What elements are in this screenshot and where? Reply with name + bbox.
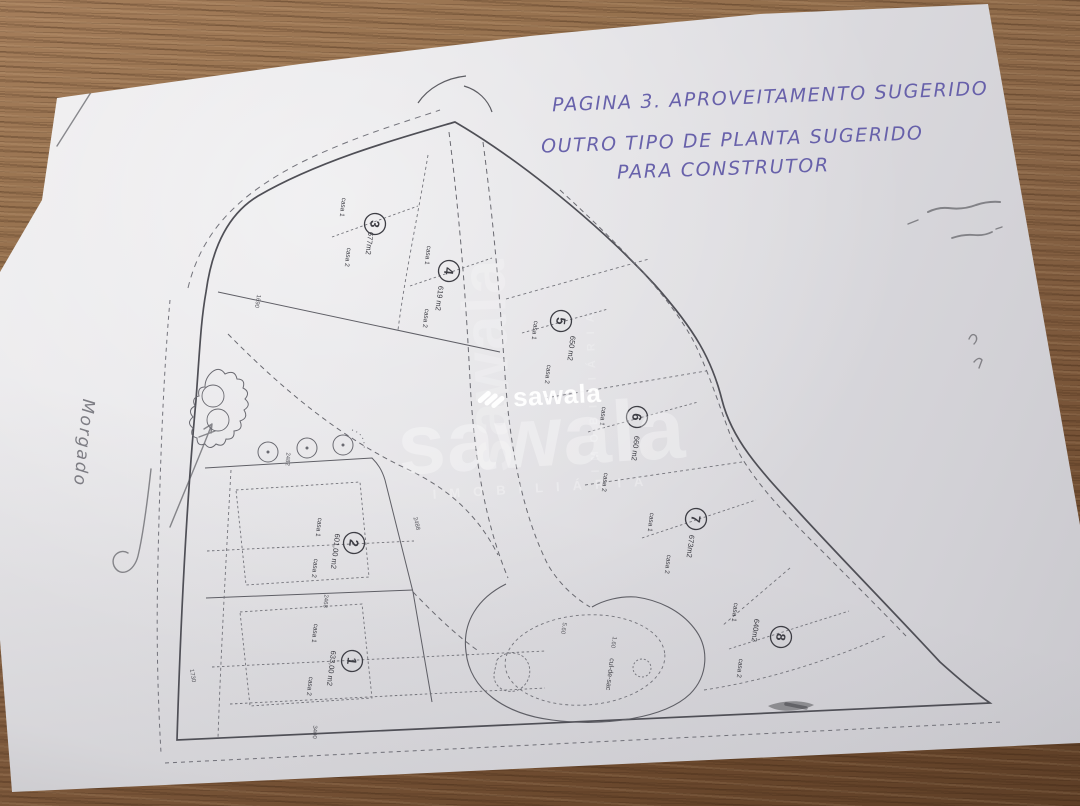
lot-1-number: 1 xyxy=(344,656,360,665)
dimension-labels: 1690 2482 2488 2468 3400 1730 5.60 1.60 … xyxy=(188,294,617,739)
lot-4-labels: 4 casa 1 619 m2 casa 2 xyxy=(421,245,461,328)
lot-5-labels: 5 casa 1 650 m2 casa 2 xyxy=(530,309,578,384)
road-right-frontage xyxy=(560,190,906,636)
dim-160: 1.60 xyxy=(609,636,617,649)
road-edge-east xyxy=(483,142,590,607)
road-curve-west-branch xyxy=(228,334,498,555)
ink-smudge xyxy=(768,701,814,710)
lot-8-number: 8 xyxy=(773,632,789,641)
garden-trees xyxy=(190,369,365,462)
dim-3400: 3400 xyxy=(311,725,317,739)
dim-2488: 2488 xyxy=(411,517,420,532)
lot8-south-dashed xyxy=(704,636,885,690)
cul-de-sac-outline xyxy=(465,584,704,722)
lot-5-area: 650 m2 xyxy=(565,335,577,361)
shrub-circle-2 xyxy=(207,409,229,431)
lot-8-house2: casa 2 xyxy=(735,658,744,678)
lot3-lot4-divider xyxy=(398,155,428,330)
lot-8-house1: casa 1 xyxy=(730,602,739,622)
house-divider-lines xyxy=(207,206,849,667)
entrance-arcs xyxy=(418,76,492,112)
lot-2-labels: 2 casa 1 601,00 m2 casa 2 xyxy=(310,517,366,578)
plot-boundary xyxy=(157,76,1002,763)
lot-5-number: 5 xyxy=(553,316,569,325)
paper-sheet: 1 casa 1 633,00 m2 casa 2 2 casa 1 601,0… xyxy=(0,0,1080,806)
cul-de-sac-inner-dashed xyxy=(502,610,668,711)
lot-2-house2: casa 2 xyxy=(310,558,319,578)
lot-1-house1: casa 1 xyxy=(310,623,319,643)
road-edge-west xyxy=(449,132,508,578)
lot-4-area: 619 m2 xyxy=(433,285,445,311)
lot1-frontage-dashed xyxy=(413,592,480,652)
lot-3-house1: casa 1 xyxy=(338,197,347,217)
lot-4-house1: casa 1 xyxy=(423,245,432,265)
shrub-circle-1 xyxy=(202,385,224,407)
lot1-lot2-divider xyxy=(206,590,413,598)
lot-1-labels: 1 casa 1 633,00 m2 casa 2 xyxy=(305,623,364,696)
lot-2-area: 601,00 m2 xyxy=(329,533,342,569)
lot5-north-edge xyxy=(506,259,649,299)
lot-8-area: 640m2 xyxy=(750,618,762,642)
cul-de-sac xyxy=(465,584,704,722)
lot-7-house2: casa 2 xyxy=(663,554,672,574)
pencil-scribble-1 xyxy=(928,202,1000,212)
lot-1-area: 633,00 m2 xyxy=(325,650,338,686)
lot-3-number: 3 xyxy=(367,219,383,228)
lot-5-house1: casa 1 xyxy=(530,320,539,340)
pencil-scribble-2 xyxy=(952,232,992,238)
site-plan-drawing: 1 casa 1 633,00 m2 casa 2 2 casa 1 601,0… xyxy=(0,0,1080,806)
lot-3-labels: 3 casa 1 677m2 casa 2 xyxy=(338,197,387,267)
boundary-offset-dashed-left xyxy=(157,300,170,753)
left-margin-dashed xyxy=(218,470,231,738)
dim-1730: 1730 xyxy=(188,669,196,684)
lot-2-house1: casa 1 xyxy=(314,517,323,537)
cul-de-sac-center-circle xyxy=(633,659,651,677)
boundary-line xyxy=(177,122,990,740)
lot-7-house1: casa 1 xyxy=(646,512,655,532)
lot-7-labels: 7 casa 1 673m2 casa 2 xyxy=(646,507,708,574)
cul-de-sac-label: cul-de-sac xyxy=(604,658,615,691)
lot2-top-line xyxy=(205,458,413,592)
dim-1690: 1690 xyxy=(253,294,261,309)
lot-6-house2: casa 2 xyxy=(600,472,609,492)
lot-2-number: 2 xyxy=(346,538,362,547)
lot-8-labels: 8 casa 1 640m2 casa 2 xyxy=(730,602,793,678)
lot-6-house1: casa 1 xyxy=(598,406,607,426)
lot-3-area: 677m2 xyxy=(364,231,376,255)
dim-2468: 2468 xyxy=(321,594,328,608)
boundary-offset-dashed-top xyxy=(188,110,440,288)
photo-of-site-plan: 1 casa 1 633,00 m2 casa 2 2 casa 1 601,0… xyxy=(0,0,1080,806)
pencil-tick-2 xyxy=(969,335,982,368)
pencil-loop-line xyxy=(113,469,151,572)
internal-roads xyxy=(228,132,906,652)
dim-2482: 2482 xyxy=(284,452,291,466)
dim-560: 5.60 xyxy=(559,622,567,635)
lot-3-house2: casa 2 xyxy=(343,247,352,267)
lot5-lot6-divider xyxy=(545,371,706,398)
cul-de-sac-island xyxy=(494,653,530,691)
lot-4-house2: casa 2 xyxy=(421,308,430,328)
lot-5-house2: casa 2 xyxy=(543,364,552,384)
shrub-cluster xyxy=(190,369,249,447)
lot-1-house2: casa 2 xyxy=(305,676,314,696)
lot-6-area: 660 m2 xyxy=(629,435,641,461)
pencil-tick-1 xyxy=(908,220,1002,229)
lot-7-area: 673m2 xyxy=(685,534,697,558)
